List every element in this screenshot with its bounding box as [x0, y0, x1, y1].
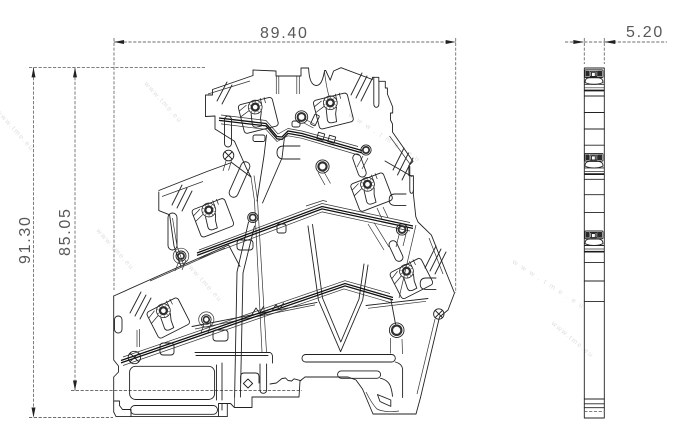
svg-text:85.05: 85.05	[57, 207, 74, 256]
svg-text:89.40: 89.40	[260, 25, 309, 42]
svg-text:91.30: 91.30	[17, 215, 34, 264]
svg-text:5.20: 5.20	[626, 24, 664, 41]
